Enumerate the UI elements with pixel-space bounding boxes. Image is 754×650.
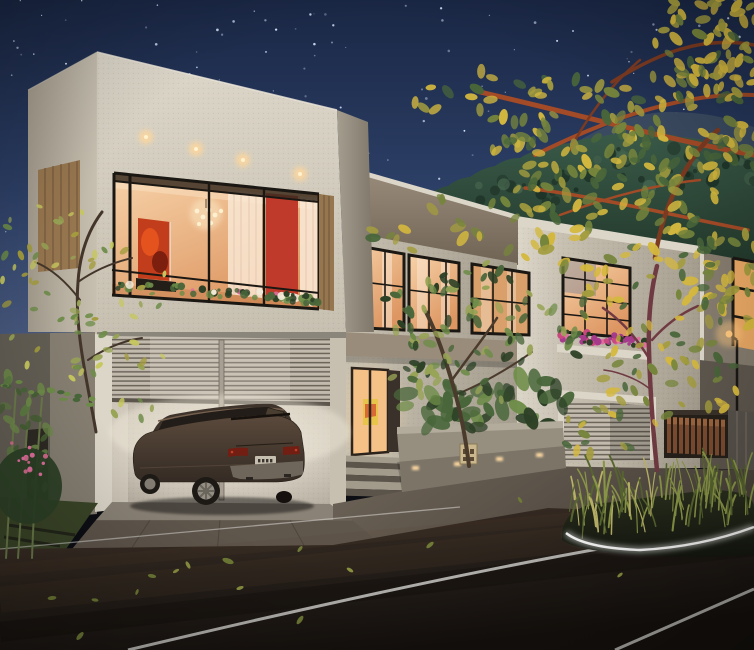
vignette (0, 0, 754, 650)
villa-night-illustration (0, 0, 754, 650)
scene-render (0, 0, 754, 650)
